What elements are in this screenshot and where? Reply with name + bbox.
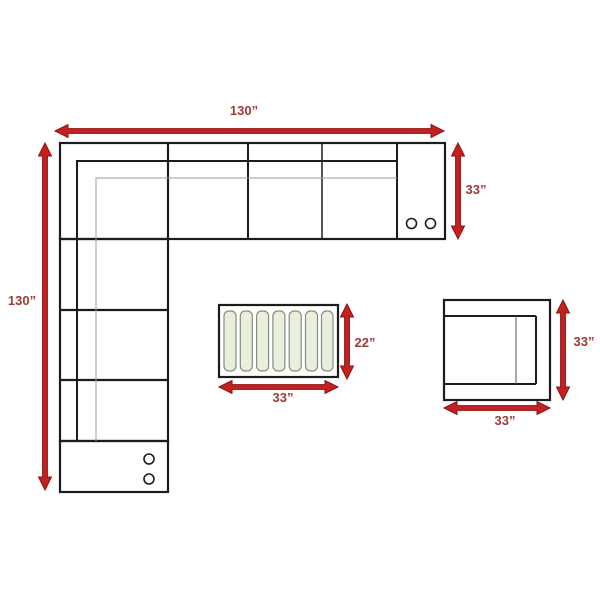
ottoman-width-label: 33” (269, 390, 297, 405)
ottoman-slat (322, 311, 334, 371)
sofa-width-arrow (55, 125, 444, 138)
chair-width-label: 33” (491, 413, 519, 428)
cupholder-circle (144, 474, 154, 484)
sofa-width-label: 130” (220, 103, 268, 118)
sofa-length-arrow (39, 143, 52, 490)
ottoman-slat (240, 311, 252, 371)
backrest-line (77, 161, 397, 441)
sofa-end-piece (60, 441, 168, 492)
sofa-length-label: 130” (4, 293, 40, 308)
cupholder-circle (426, 219, 436, 229)
ottoman-slat (257, 311, 269, 371)
product-dimension-diagram: 130” 130” 33” 22” 33” 33” 33” (0, 0, 600, 600)
ottoman-depth-label: 22” (352, 335, 378, 350)
dimension-arrows (39, 125, 570, 491)
dimension-diagram-drawing (0, 0, 600, 600)
sofa-top-row (60, 143, 445, 239)
ottoman-slat (224, 311, 236, 371)
ottoman-slat (289, 311, 301, 371)
ottoman-slats (224, 311, 333, 371)
sofa-depth-label: 33” (462, 182, 490, 197)
ottoman-slat (306, 311, 318, 371)
accent-chair (444, 300, 550, 400)
storage-ottoman (219, 305, 338, 377)
cupholder-circle (144, 454, 154, 464)
cupholder-circle (407, 219, 417, 229)
chair-depth-arrow (557, 300, 570, 400)
chair-depth-label: 33” (570, 334, 598, 349)
ottoman-slat (273, 311, 285, 371)
